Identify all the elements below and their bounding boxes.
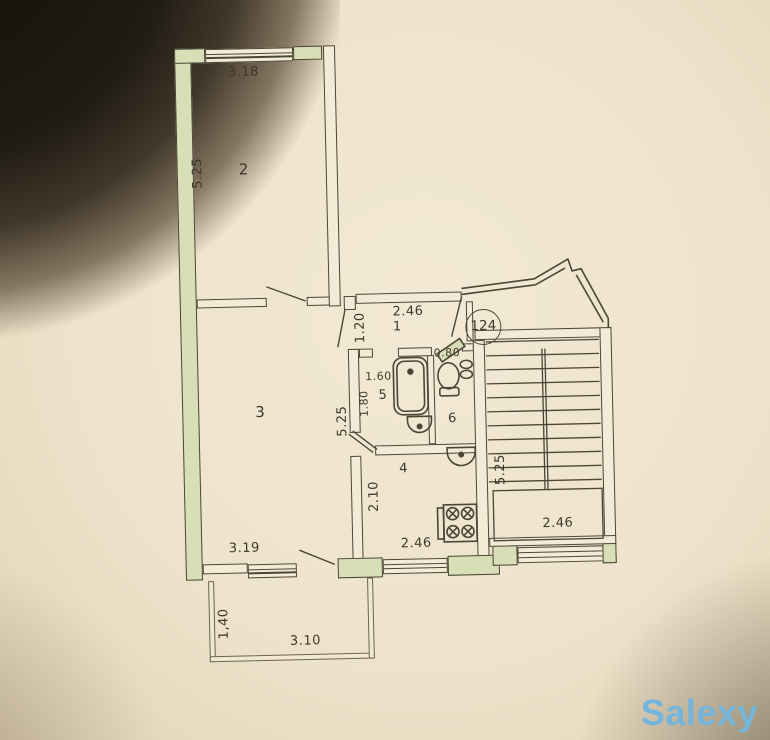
stair-landing-outline <box>493 488 603 540</box>
room-label-room3: 3 <box>255 403 265 421</box>
room-label-hall: 1 <box>393 319 402 334</box>
bathtub-icon <box>393 357 428 415</box>
dim-room3-depth: 5.25 <box>335 406 351 437</box>
dim-room2-depth: 5.25 <box>190 158 206 189</box>
room-label-room2: 2 <box>239 160 249 178</box>
bathroom-sink-icon <box>407 416 431 433</box>
door-leaf-room2 <box>266 286 305 302</box>
floorplan-photo: 124 1 2 3 4 5 6 3.18 5.25 2.46 1.20 0.80… <box>0 0 770 740</box>
floorplan-drawing: 124 1 2 3 4 5 6 3.18 5.25 2.46 1.20 0.80… <box>161 31 627 681</box>
dim-kitchen-width: 2.46 <box>401 536 432 552</box>
room-label-wc: 6 <box>448 411 457 426</box>
room-label-bathroom: 5 <box>378 388 387 403</box>
room-label-kitchen: 4 <box>399 461 408 476</box>
kitchen-sink-icon <box>447 447 475 466</box>
dim-room2-width: 3.18 <box>228 64 259 80</box>
dim-kitchen-depth: 2.10 <box>366 481 382 512</box>
dim-hall-depth: 1.20 <box>353 312 369 343</box>
staircase-steps <box>486 339 603 541</box>
apartment-number: 124 <box>470 318 496 335</box>
door-leaf-entry <box>451 296 463 336</box>
dim-room3-width: 3.19 <box>229 541 260 557</box>
toilet-icon <box>438 360 473 396</box>
dim-wc-width: 0.80 <box>434 346 461 360</box>
dim-stairwell-depth: 5.25 <box>493 454 509 485</box>
salexy-watermark: Salexy <box>641 692 758 734</box>
door-leaf-balcony <box>299 549 334 565</box>
dim-balcony-width: 3.10 <box>290 633 321 649</box>
dim-stairwell-width: 2.46 <box>542 515 573 531</box>
dim-balcony-depth: 1,40 <box>216 608 232 639</box>
door-leaf-room3-hall <box>337 310 346 347</box>
dim-bathroom-depth: 1.80 <box>357 390 371 417</box>
dim-bathroom-width: 1.60 <box>365 370 392 384</box>
plan-linework <box>161 31 627 681</box>
stove-icon <box>437 504 477 542</box>
dim-hall-width: 2.46 <box>392 304 423 320</box>
